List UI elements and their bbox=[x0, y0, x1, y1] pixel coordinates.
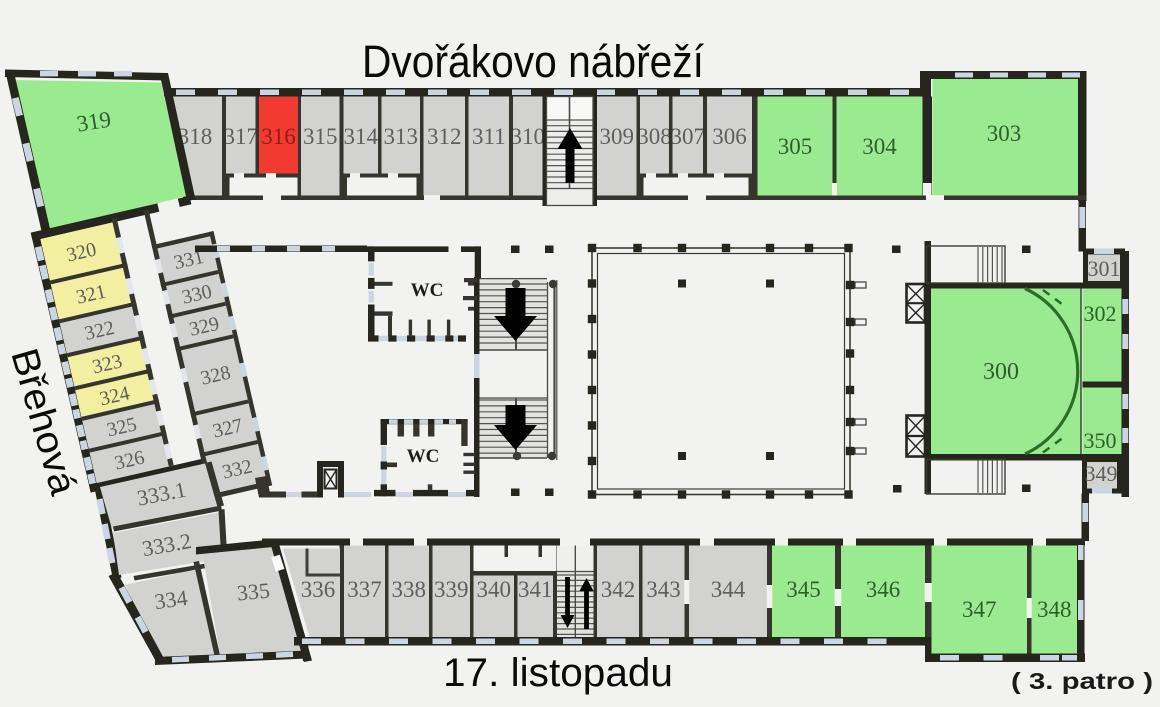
svg-text:343: 343 bbox=[646, 577, 681, 602]
svg-text:WC: WC bbox=[411, 280, 444, 301]
svg-text:302: 302 bbox=[1084, 301, 1117, 326]
svg-text:17. listopadu: 17. listopadu bbox=[443, 651, 673, 695]
svg-text:308: 308 bbox=[637, 124, 672, 149]
svg-text:339: 339 bbox=[434, 577, 469, 602]
svg-text:316: 316 bbox=[261, 124, 296, 149]
svg-text:348: 348 bbox=[1037, 597, 1072, 622]
svg-text:303: 303 bbox=[987, 121, 1022, 146]
svg-text:Dvořákovo nábřeží: Dvořákovo nábřeží bbox=[362, 36, 704, 87]
svg-text:349: 349 bbox=[1085, 461, 1118, 486]
svg-text:312: 312 bbox=[427, 124, 462, 149]
svg-text:319: 319 bbox=[75, 107, 113, 137]
svg-text:340: 340 bbox=[477, 577, 512, 602]
svg-text:341: 341 bbox=[518, 577, 553, 602]
svg-text:346: 346 bbox=[866, 577, 901, 602]
svg-text:344: 344 bbox=[711, 577, 746, 602]
svg-text:315: 315 bbox=[303, 124, 338, 149]
svg-text:334: 334 bbox=[153, 585, 189, 614]
svg-text:304: 304 bbox=[862, 134, 897, 159]
svg-text:310: 310 bbox=[511, 124, 546, 149]
svg-text:309: 309 bbox=[600, 124, 635, 149]
svg-text:342: 342 bbox=[601, 577, 636, 602]
svg-text:307: 307 bbox=[671, 124, 706, 149]
svg-text:337: 337 bbox=[347, 577, 382, 602]
svg-text:317: 317 bbox=[224, 124, 259, 149]
svg-text:336: 336 bbox=[301, 577, 336, 602]
svg-text:350: 350 bbox=[1084, 428, 1117, 453]
svg-text:306: 306 bbox=[712, 124, 747, 149]
svg-text:311: 311 bbox=[472, 124, 506, 149]
svg-text:313: 313 bbox=[384, 124, 419, 149]
svg-text:WC: WC bbox=[407, 446, 440, 467]
svg-text:345: 345 bbox=[786, 577, 821, 602]
svg-text:300: 300 bbox=[983, 359, 1019, 385]
svg-text:335: 335 bbox=[236, 578, 271, 606]
svg-text:( 3. patro ): ( 3. patro ) bbox=[1011, 668, 1153, 694]
svg-text:338: 338 bbox=[392, 577, 427, 602]
svg-text:305: 305 bbox=[778, 134, 813, 159]
svg-text:347: 347 bbox=[962, 597, 997, 622]
svg-text:301: 301 bbox=[1088, 256, 1121, 281]
svg-text:314: 314 bbox=[344, 124, 379, 149]
